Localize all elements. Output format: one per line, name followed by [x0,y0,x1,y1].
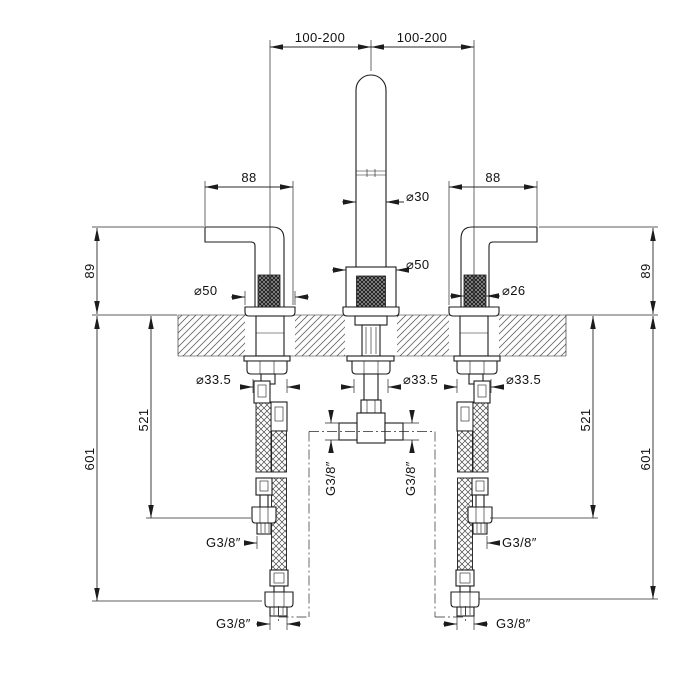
right-hose-a-neck [476,495,484,507]
right-valve-washer [454,356,500,361]
dim-label-hose-outer-left: 601 [82,448,97,471]
dim-label-top-spacing-right: 100-200 [397,30,448,45]
dim-label-hole-center: ⌀33.5 [403,372,438,387]
left-hose-b-braid-upper [272,431,287,472]
left-handle-knurl [258,275,280,307]
left-hose-a-braid [256,403,271,472]
drawing-background [0,0,700,700]
dim-label-top-spacing-left: 100-200 [295,30,346,45]
technical-drawing: 100-200 100-200 88 88 ⌀30 ⌀50 ⌀50 ⌀26 89 [0,0,700,700]
right-handle-flange [449,307,499,316]
dim-label-thread-mid-right: G3/8″ [502,535,537,550]
right-valve-nut [457,361,497,374]
left-valve-washer [244,356,290,361]
right-hose-b-braid-lower [458,478,473,570]
right-hose-b-nut [451,592,479,607]
left-hose-b-neck [274,586,284,592]
right-hose-a-nut [468,507,492,523]
left-hose-a-collar [254,381,270,403]
left-handle-flange [245,307,295,316]
dim-label-thread-tee-left: G3/8″ [323,461,338,496]
left-hose-a-end-collar [256,478,272,495]
dim-label-thread-bottom-right: G3/8″ [496,616,531,631]
dim-label-hose-inner-left: 521 [136,409,151,432]
dim-label-height-left: 89 [82,263,97,278]
right-hose-b-braid-upper [458,431,473,472]
right-hose-b-neck [460,586,470,592]
dim-label-hole-right: ⌀33.5 [506,372,541,387]
tee-body [357,413,385,443]
left-hose-b-end-collar [270,570,288,586]
dim-label-hose-inner-right: 521 [578,409,593,432]
left-valve-nut [247,361,287,374]
left-valve-shank [256,316,284,356]
left-hose-b-nut [265,592,293,607]
dim-label-thread-mid-left: G3/8″ [206,535,241,550]
right-hose-b-end-collar [456,570,474,586]
spout-washer [347,356,394,361]
dim-label-spout-diameter: ⌀30 [406,189,430,204]
spout-mounting-nut [352,361,390,374]
dim-label-hole-left: ⌀33.5 [196,372,231,387]
left-hose-a-neck [260,495,268,507]
spout-neck [355,316,387,325]
dim-label-thread-bottom-left: G3/8″ [216,616,251,631]
dim-label-spout-base-diameter: ⌀50 [406,257,430,272]
right-hose-a-collar [474,381,490,403]
right-hose-a-braid [473,403,488,472]
left-hose-b-collar [271,402,287,431]
dim-label-thread-tee-right: G3/8″ [403,461,418,496]
left-hose-b-braid-lower [272,478,287,570]
spout-knurl [357,276,386,307]
dim-label-hose-outer-right: 601 [638,448,653,471]
right-handle-knurl [464,275,486,307]
dim-label-handle-width-left: 88 [241,170,256,185]
tee-hex [361,400,381,413]
dim-label-right-handle-knurl-diameter: ⌀26 [502,283,526,298]
dim-label-handle-width-right: 88 [485,170,500,185]
right-hose-a-end-collar [472,478,488,495]
left-hose-a-nut [252,507,276,523]
dim-label-left-handle-base-diameter: ⌀50 [194,283,218,298]
right-hose-b-collar [457,402,473,431]
right-valve-shank [460,316,488,356]
spout-stem [364,374,378,400]
spout-flange [343,307,399,316]
dim-label-height-right: 89 [638,263,653,278]
